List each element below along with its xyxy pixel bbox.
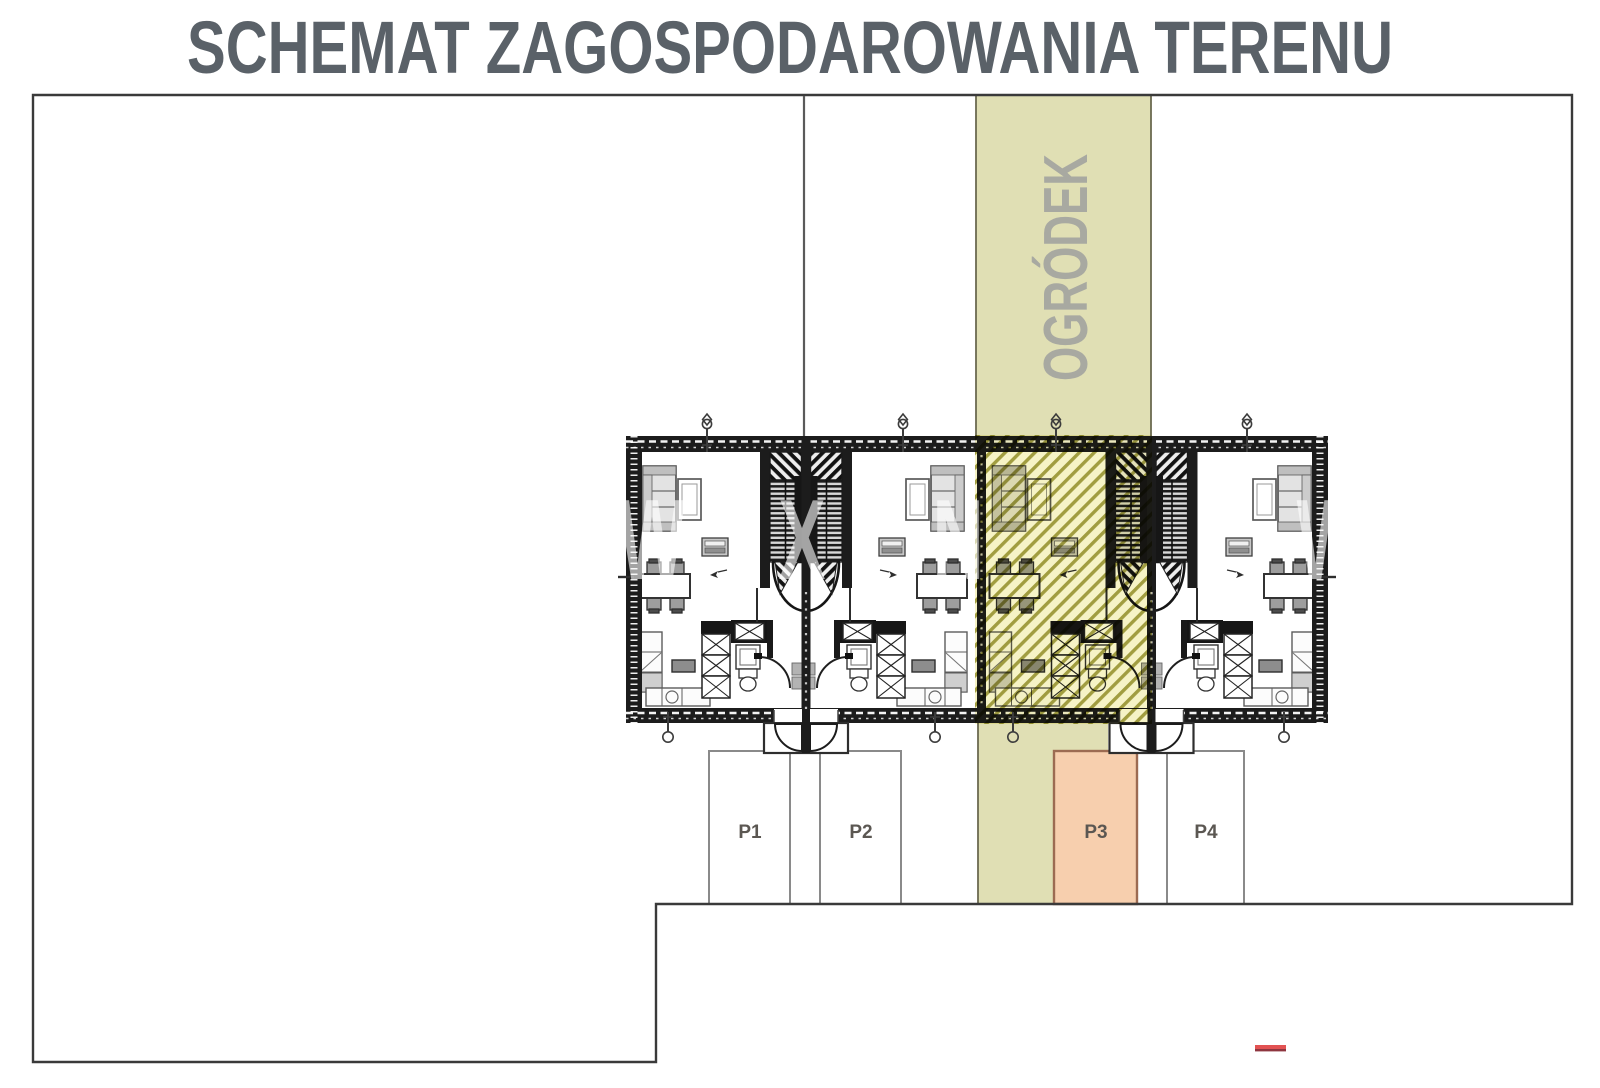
svg-text:W: W — [1297, 477, 1364, 604]
svg-text:X: X — [778, 477, 825, 604]
svg-text:OGRÓDEK: OGRÓDEK — [1032, 154, 1101, 381]
svg-text:W: W — [619, 477, 686, 604]
svg-text:P2: P2 — [849, 822, 872, 843]
svg-text:N: N — [932, 477, 983, 604]
svg-text:P3: P3 — [1084, 822, 1107, 843]
svg-text:P4: P4 — [1194, 822, 1218, 843]
svg-text:SCHEMAT ZAGOSPODAROWANIA TEREN: SCHEMAT ZAGOSPODAROWANIA TERENU — [187, 6, 1393, 89]
svg-text:P1: P1 — [738, 822, 762, 843]
